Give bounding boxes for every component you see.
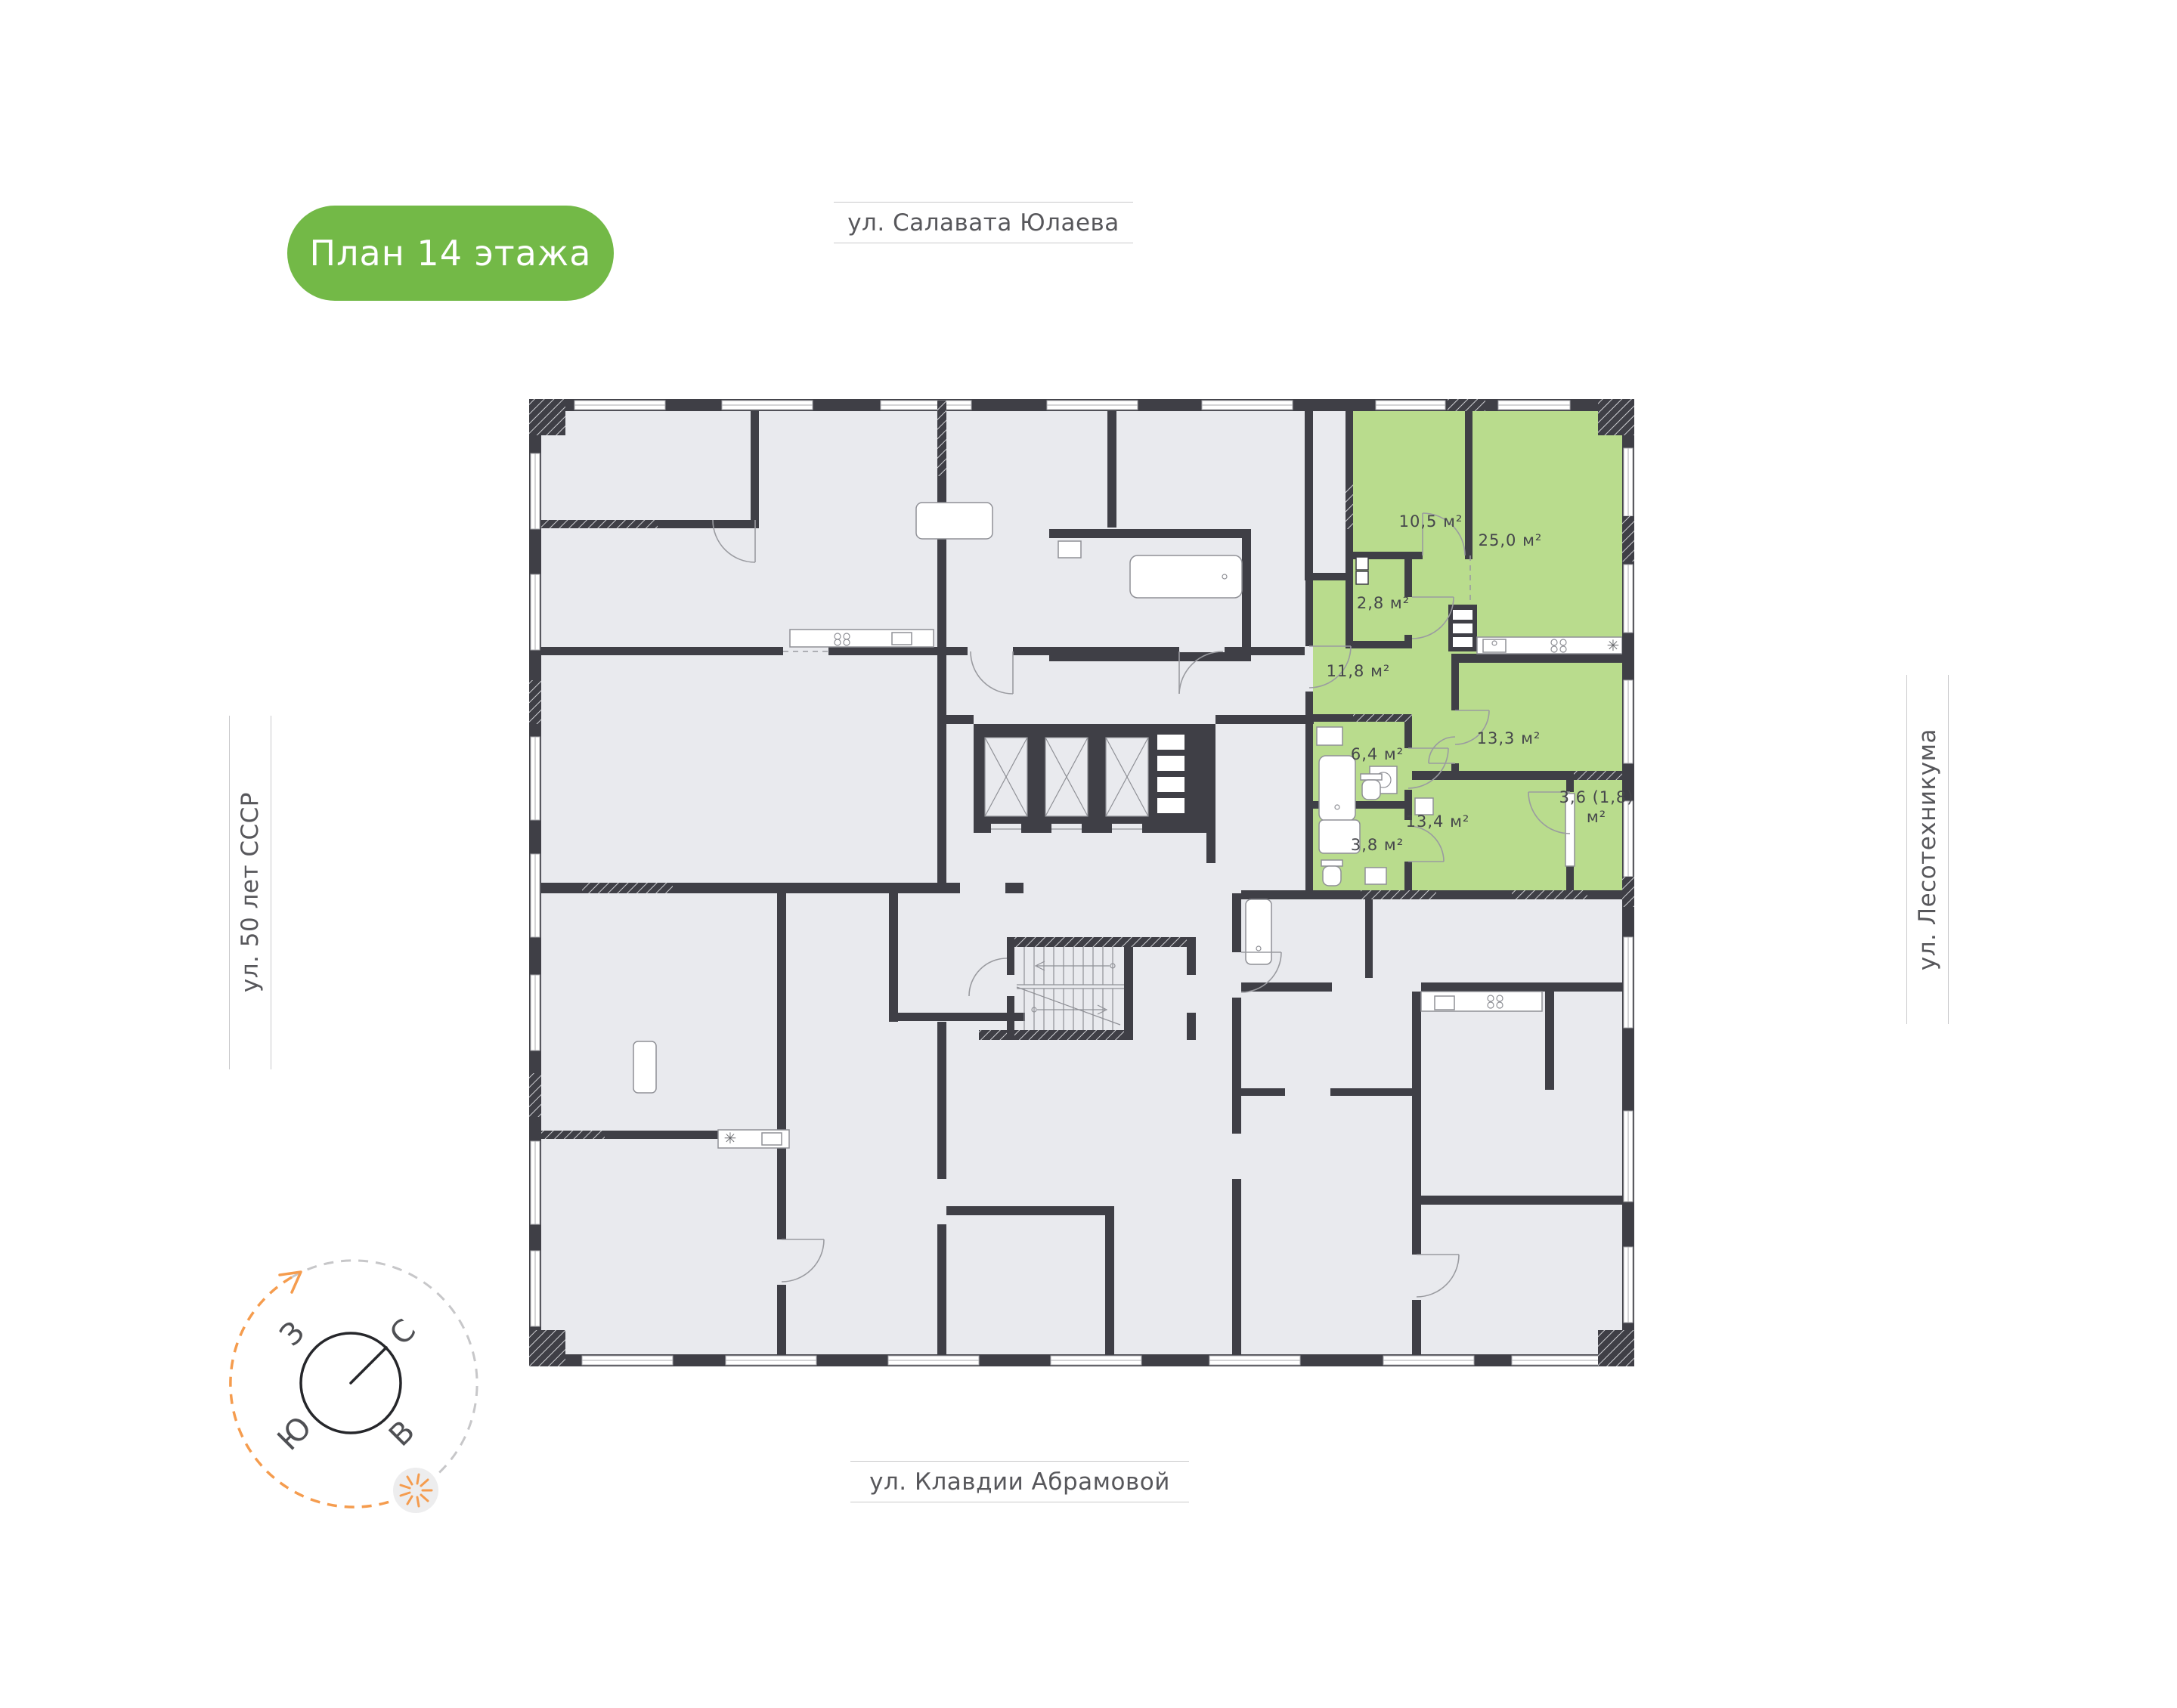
compass-letter-north: С (383, 1313, 423, 1352)
kitchen-sink-icon (892, 633, 912, 645)
compass-letter-east: В (382, 1414, 422, 1453)
kitchen-sink-icon (762, 1133, 782, 1145)
room-area-label: 13,4 м² (1406, 812, 1470, 831)
bathtub-icon (1319, 756, 1355, 821)
page: План 14 этажа ул. Салавата Юлаева ул. Кл… (0, 0, 2177, 1708)
kitchen-counter: ✳ (1477, 636, 1622, 654)
elevator-shaft-3 (1106, 738, 1148, 816)
compass: З С Ю В (231, 1261, 477, 1513)
bathtub-icon (1130, 555, 1242, 598)
wardrobe-icon (1356, 557, 1368, 570)
room-area-label: 13,3 м² (1477, 729, 1541, 747)
room-area-label: 6,4 м² (1351, 745, 1404, 763)
room-area-label: 3,8 м² (1351, 836, 1404, 854)
kitchen-sink-icon (1435, 996, 1454, 1010)
kitchen-counter: ✳ (718, 1129, 789, 1148)
toilet-icon (1361, 774, 1382, 780)
toilet-icon (1321, 860, 1342, 866)
sun-icon (393, 1468, 438, 1513)
bathtub-icon (633, 1041, 656, 1093)
bathtub-icon (916, 503, 993, 539)
sink-icon (1317, 727, 1342, 745)
sink-icon (1365, 868, 1386, 884)
sink-icon (1058, 541, 1081, 558)
room-area-label: м² (1587, 808, 1606, 826)
kitchen-counter (790, 630, 934, 647)
room-area-label: 10,5 м² (1399, 512, 1463, 531)
room-area-label: 11,8 м² (1327, 662, 1391, 680)
compass-letter-south: Ю (271, 1409, 318, 1457)
elevator-shaft-1 (985, 738, 1027, 816)
room-area-label: 3,6 (1,8) (1559, 788, 1634, 806)
wardrobe-icon (1356, 571, 1368, 584)
room-area-label: 25,0 м² (1479, 531, 1543, 549)
floor-plan: ✳ ✳ (0, 0, 2177, 1708)
room-area-label: 2,8 м² (1357, 594, 1410, 612)
building: ✳ ✳ (529, 399, 1634, 1366)
fridge-icon: ✳ (724, 1129, 737, 1147)
elevator-core (974, 724, 1215, 834)
kitchen-counter (1421, 992, 1542, 1011)
compass-letter-west: З (274, 1315, 312, 1354)
fridge-icon: ✳ (1607, 636, 1620, 654)
bathtub-icon (1246, 899, 1271, 964)
elevator-shaft-2 (1045, 738, 1088, 816)
